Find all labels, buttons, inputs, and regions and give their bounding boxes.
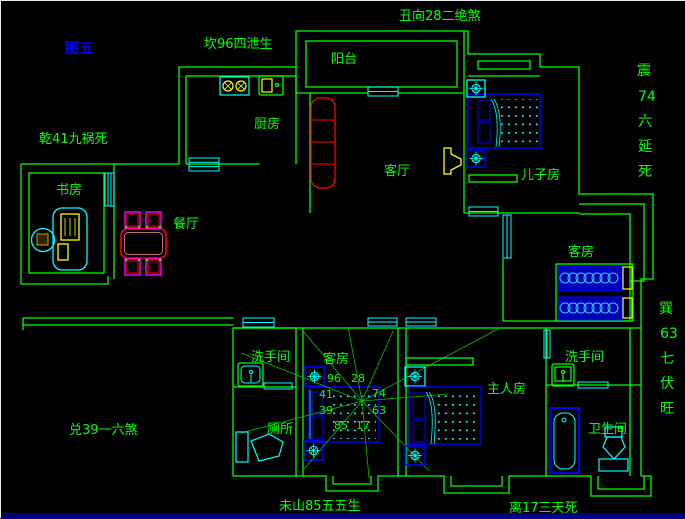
compass-number-41: 41 [319,388,333,401]
southeast-char-5: 旺 [660,401,674,417]
southeast-char-3: 七 [660,351,674,367]
compass-number-74: 74 [372,387,386,400]
taskbar-strip [1,513,685,519]
east-char-4: 延 [638,139,652,155]
room-label-guest-right: 客房 [568,244,594,260]
room-label-guest-mid: 客房 [323,351,349,367]
east-char-1: 震 [637,63,651,79]
annotation-southwest: 未山85五五生 [279,499,361,514]
southeast-char-4: 伏 [660,376,674,392]
compass-number-96: 96 [327,372,341,385]
annotation-northeast: 丑向28二绝煞 [399,8,481,24]
east-char-5: 死 [638,164,652,180]
room-label-dining: 餐厅 [173,216,199,232]
room-label-washroom-right: 洗手间 [565,350,604,365]
annotation-west: 兑39一六煞 [69,423,138,438]
annotation-north: 坎96四泄生 [204,37,273,52]
room-label-toilet-left: 厕所 [267,422,293,437]
room-label-study: 书房 [56,182,82,198]
southeast-char-2: 63 [660,326,678,342]
room-label-son-room: 儿子房 [521,167,560,183]
room-label-kitchen: 厨房 [254,116,280,132]
east-char-3: 六 [638,114,652,130]
room-label-master: 主人房 [487,381,526,397]
southeast-char-1: 巽 [659,301,673,317]
room-label-bathroom-right: 卫生间 [588,422,627,437]
compass-number-63: 63 [372,404,386,417]
room-label-living: 客厅 [384,163,410,179]
compass-number-17: 17 [356,419,370,432]
compass-number-28: 28 [351,372,365,385]
floorplan-canvas: 96 28 41 74 39 63 85 17 [0,0,685,518]
compass-number-85: 85 [334,419,348,432]
figure-label: 图五 [65,41,93,57]
east-char-2: 74 [638,89,656,105]
floorplan-drawing: 96 28 41 74 39 63 85 17 [1,1,685,519]
compass-number-39: 39 [319,404,333,417]
room-label-washroom-left: 洗手间 [251,350,290,365]
annotation-northwest: 乾41九祸死 [39,132,108,147]
room-label-balcony: 阳台 [331,52,357,67]
